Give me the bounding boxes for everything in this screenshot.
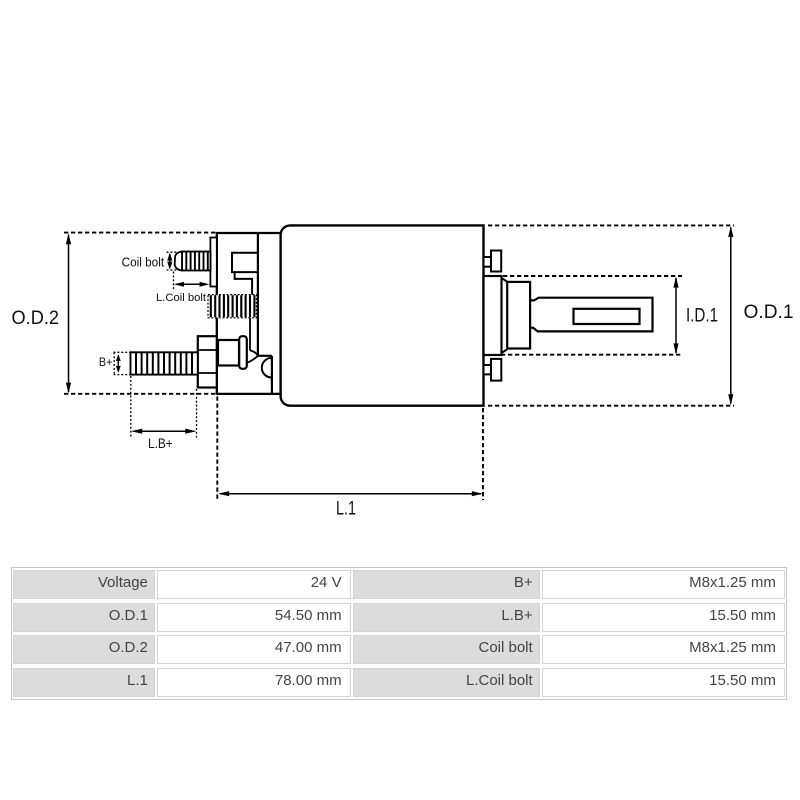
svg-text:O.D.2: O.D.2 — [12, 307, 60, 329]
svg-text:L.Coil bolt: L.Coil bolt — [156, 292, 206, 304]
svg-text:Coil bolt: Coil bolt — [122, 256, 165, 270]
svg-text:I.D.1: I.D.1 — [686, 304, 718, 326]
svg-text:L.B+: L.B+ — [148, 435, 173, 451]
svg-text:O.D.1: O.D.1 — [744, 301, 794, 323]
svg-text:L.1: L.1 — [336, 498, 356, 520]
svg-text:B+: B+ — [99, 355, 113, 369]
